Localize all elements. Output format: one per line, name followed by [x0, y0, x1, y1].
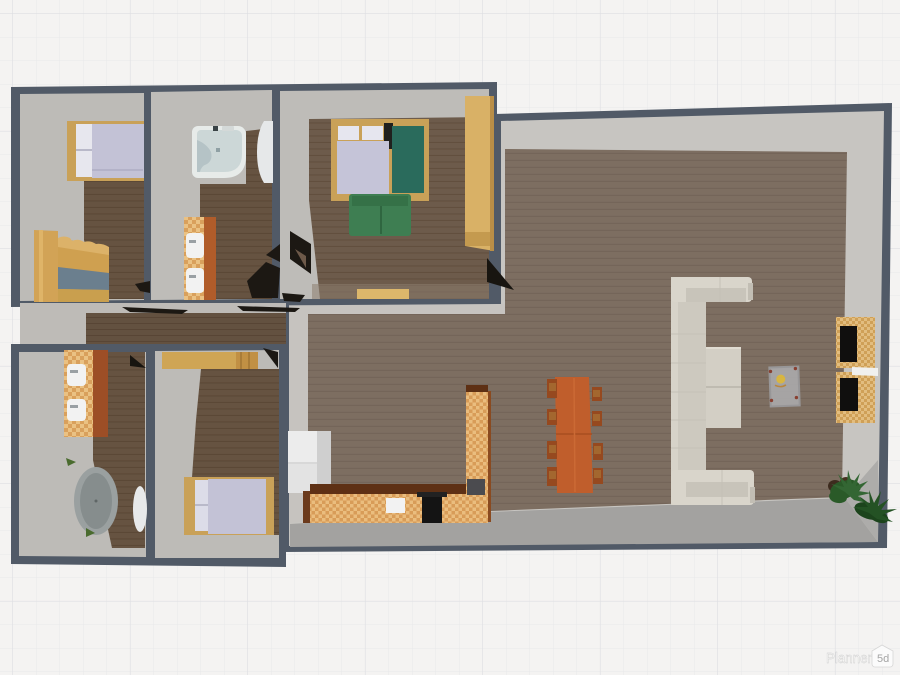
- svg-text:Planner: Planner: [826, 650, 872, 667]
- svg-text:5d: 5d: [877, 653, 889, 665]
